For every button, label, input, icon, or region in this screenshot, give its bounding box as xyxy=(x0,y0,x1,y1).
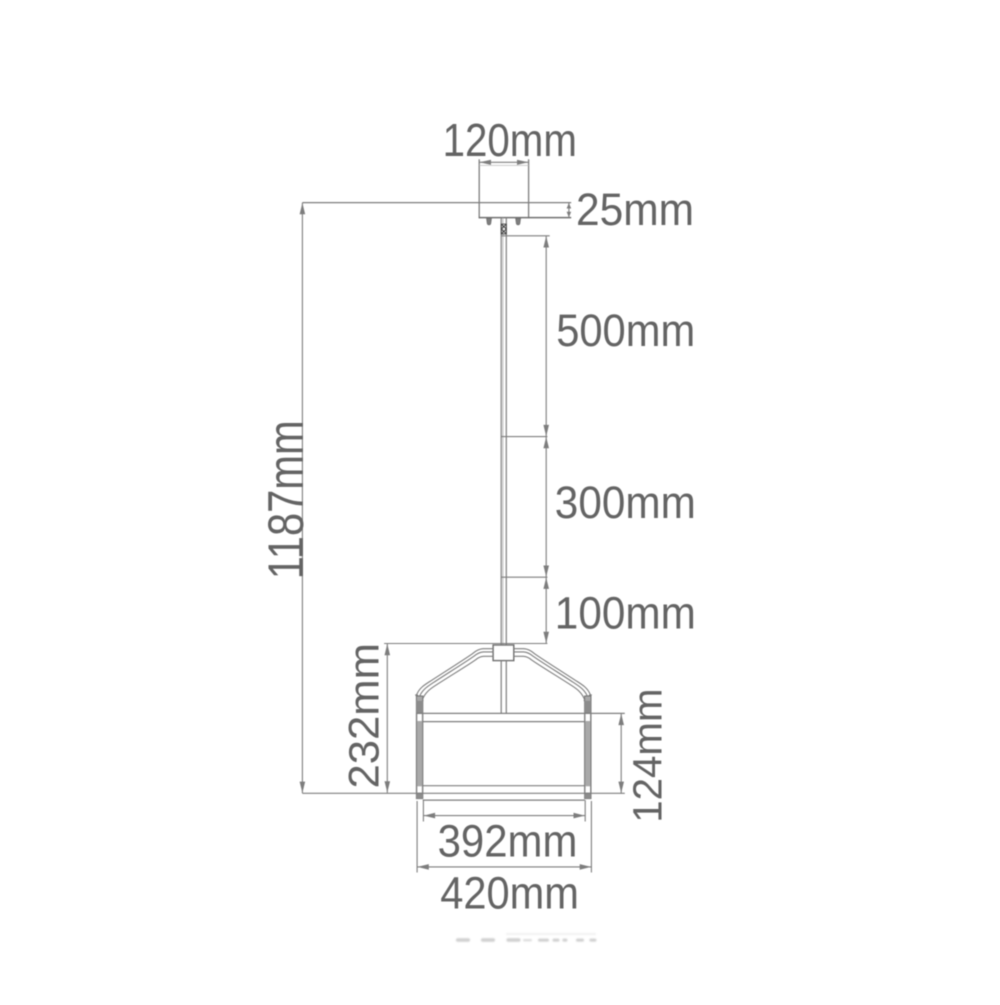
svg-text:392mm: 392mm xyxy=(438,816,578,867)
svg-text:300mm: 300mm xyxy=(555,477,696,528)
svg-text:124mm: 124mm xyxy=(625,689,671,823)
svg-text:1187mm: 1187mm xyxy=(258,420,314,579)
svg-text:120mm: 120mm xyxy=(443,114,577,166)
svg-text:500mm: 500mm xyxy=(556,305,695,356)
svg-text:25mm: 25mm xyxy=(576,184,694,235)
svg-text:420mm: 420mm xyxy=(440,867,579,918)
svg-text:232mm: 232mm xyxy=(341,643,389,789)
svg-text:100mm: 100mm xyxy=(555,588,696,639)
